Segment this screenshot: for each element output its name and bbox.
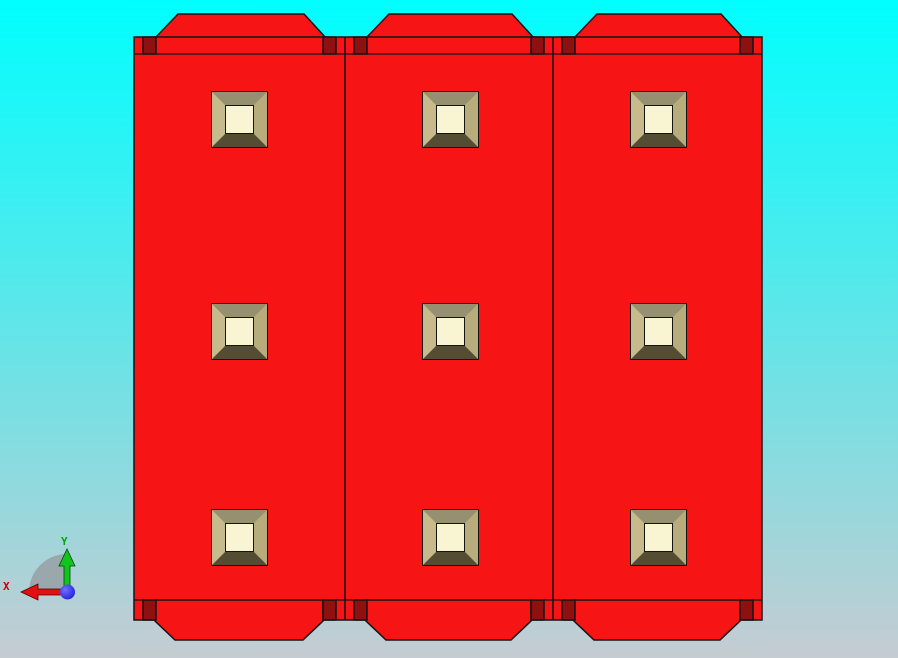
boss-bevel-face [423,510,478,565]
square-boss[interactable] [211,509,268,566]
boss-bevel-face [423,304,478,359]
z-axis-ball-icon [60,585,75,600]
square-boss[interactable] [422,509,479,566]
square-boss[interactable] [630,509,687,566]
square-boss[interactable] [630,91,687,148]
square-boss[interactable] [422,91,479,148]
cad-viewport[interactable]: X Y [0,0,898,658]
boss-bevel-face [631,92,686,147]
square-boss[interactable] [211,303,268,360]
x-axis-label: X [3,580,10,593]
boss-bevel-face [212,304,267,359]
square-boss[interactable] [211,91,268,148]
orientation-triad-icon[interactable]: X Y [0,528,120,633]
y-axis-label: Y [61,535,68,548]
boss-bevel-face [212,92,267,147]
boss-bevel-face [631,510,686,565]
square-boss[interactable] [630,303,687,360]
boss-layer [0,0,898,658]
boss-bevel-face [212,510,267,565]
boss-bevel-face [423,92,478,147]
square-boss[interactable] [422,303,479,360]
boss-bevel-face [631,304,686,359]
